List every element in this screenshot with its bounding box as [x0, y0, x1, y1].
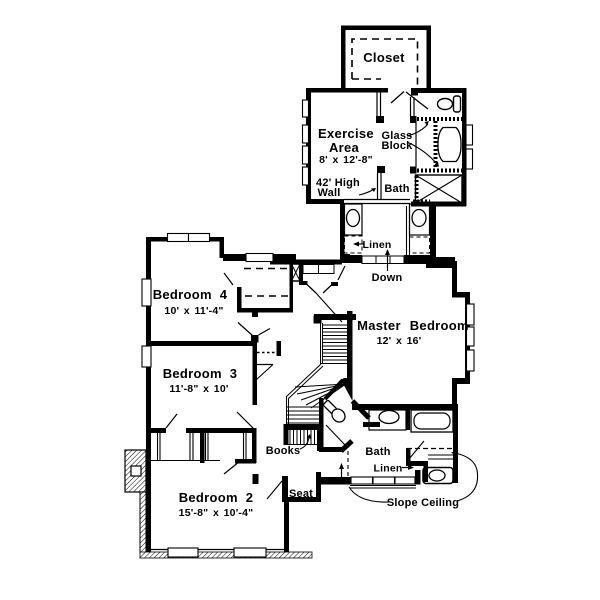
svg-text:Area: Area	[329, 140, 360, 155]
svg-text:Down: Down	[372, 272, 403, 284]
svg-text:8' x 12'-8": 8' x 12'-8"	[319, 154, 373, 166]
svg-text:Bedroom 3: Bedroom 3	[163, 366, 238, 381]
svg-text:Closet: Closet	[363, 50, 405, 65]
svg-text:Block: Block	[382, 140, 414, 152]
svg-text:Wall: Wall	[317, 187, 340, 199]
svg-text:10' x 11'-4": 10' x 11'-4"	[164, 305, 223, 317]
svg-text:11'-8" x 10': 11'-8" x 10'	[169, 383, 228, 395]
svg-text:Bath: Bath	[365, 446, 390, 458]
svg-text:Master Bedroom: Master Bedroom	[357, 318, 469, 333]
svg-text:Linen: Linen	[363, 239, 392, 251]
svg-text:Books: Books	[266, 445, 301, 457]
svg-text:15'-8" x 10'-4": 15'-8" x 10'-4"	[179, 507, 254, 519]
svg-text:Slope Ceiling: Slope Ceiling	[387, 497, 459, 509]
svg-text:12' x 16': 12' x 16'	[377, 335, 422, 347]
svg-text:Bedroom 4: Bedroom 4	[153, 287, 228, 302]
svg-text:Exercise: Exercise	[318, 126, 374, 141]
svg-text:Seat: Seat	[289, 488, 313, 500]
svg-text:Linen: Linen	[374, 463, 403, 475]
svg-text:Bedroom 2: Bedroom 2	[179, 490, 254, 505]
svg-text:Bath: Bath	[384, 183, 409, 195]
